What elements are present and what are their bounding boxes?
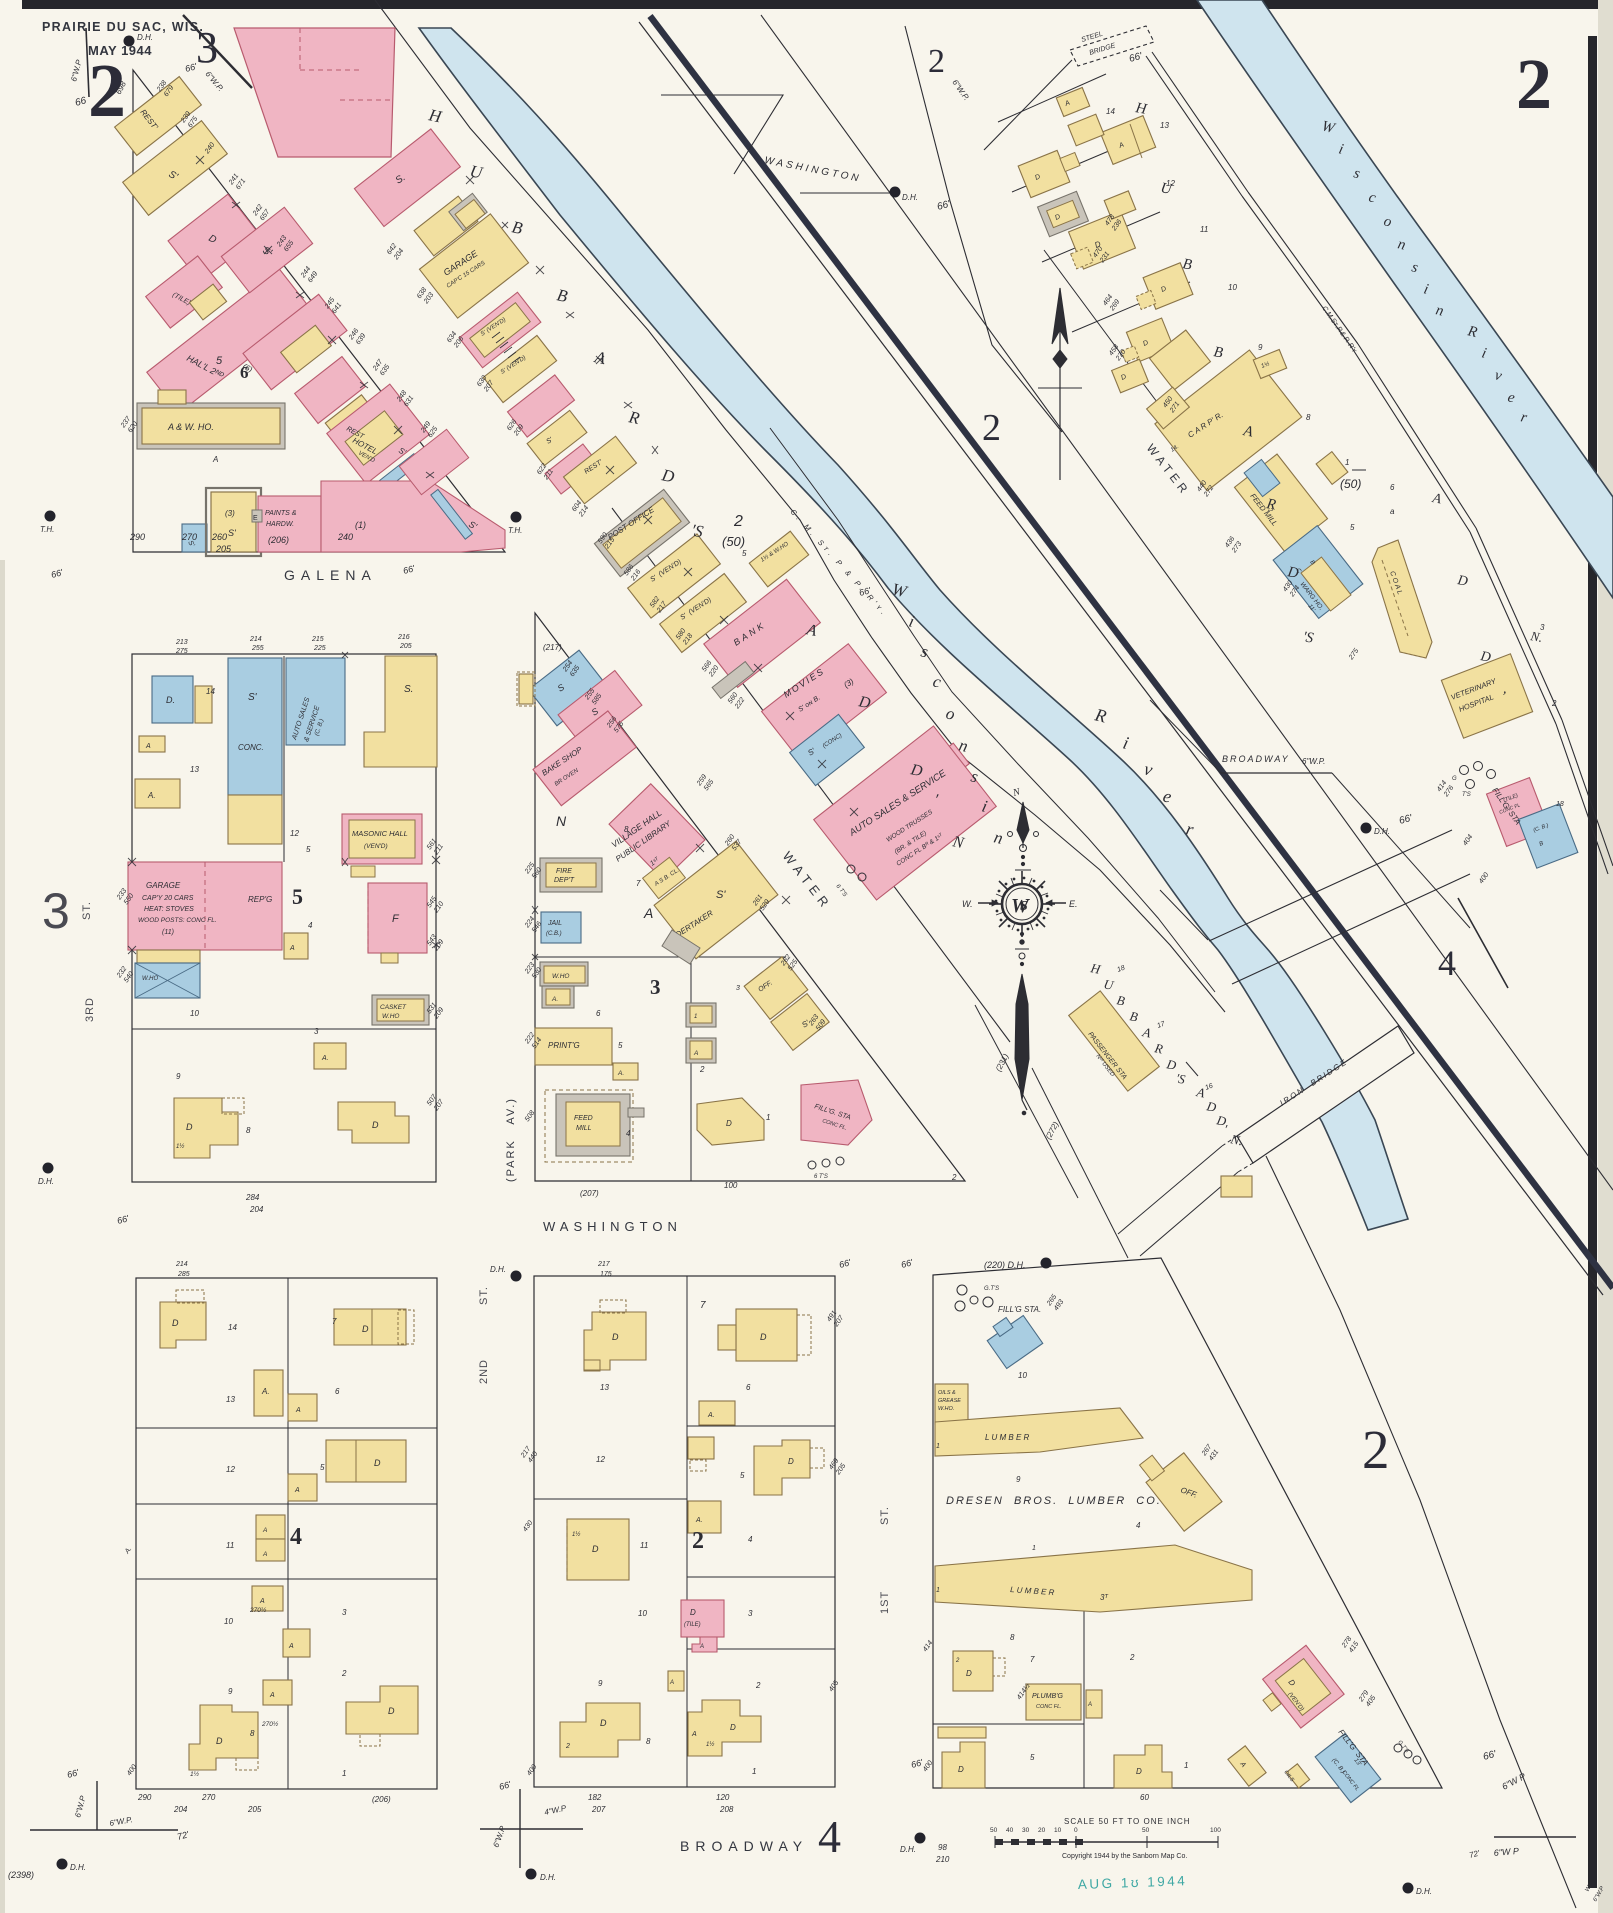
svg-text:BROADWAY: BROADWAY: [680, 1838, 808, 1854]
svg-text:1: 1: [936, 1587, 940, 1594]
svg-text:D.H.: D.H.: [38, 1177, 54, 1186]
svg-text:2: 2: [1129, 1653, 1135, 1662]
svg-text:S': S': [228, 528, 236, 538]
svg-text:1: 1: [1032, 1545, 1036, 1552]
svg-text:FIRE: FIRE: [556, 868, 572, 875]
svg-text:D: D: [216, 1736, 223, 1746]
svg-text:255: 255: [251, 645, 264, 652]
svg-text:CONC FL.: CONC FL.: [1036, 1704, 1062, 1710]
svg-text:A: A: [145, 743, 151, 750]
svg-text:D.H.: D.H.: [540, 1873, 556, 1882]
svg-text:5: 5: [292, 884, 303, 909]
svg-text:12: 12: [596, 1455, 605, 1464]
svg-text:D.H.: D.H.: [1374, 827, 1390, 836]
svg-text:(50): (50): [722, 534, 745, 549]
svg-text:A: A: [289, 945, 295, 952]
svg-text:8: 8: [646, 1737, 651, 1746]
svg-text:D: D: [592, 1544, 599, 1554]
svg-text:(217): (217): [543, 643, 562, 652]
svg-text:7: 7: [1030, 1655, 1035, 1664]
svg-text:290: 290: [129, 532, 145, 542]
svg-text:D.H.: D.H.: [902, 193, 918, 202]
svg-text:2: 2: [982, 407, 1001, 449]
svg-text:20: 20: [1038, 1827, 1046, 1834]
svg-text:2: 2: [951, 1173, 957, 1182]
svg-text:213: 213: [175, 639, 188, 646]
svg-text:A: A: [269, 1692, 275, 1699]
svg-text:G.T'S: G.T'S: [984, 1286, 999, 1292]
svg-text:214: 214: [249, 636, 262, 643]
svg-text:A: A: [669, 1680, 674, 1686]
svg-text:3: 3: [748, 1609, 753, 1618]
svg-text:PRAIRIE DU SAC, WIS.: PRAIRIE DU SAC, WIS.: [42, 20, 204, 34]
svg-text:1½: 1½: [572, 1531, 580, 1538]
svg-text:270½: 270½: [249, 1606, 267, 1614]
svg-text:1½: 1½: [706, 1741, 714, 1748]
svg-text:5: 5: [742, 549, 747, 558]
svg-text:ST.: ST.: [879, 1506, 891, 1525]
svg-text:4: 4: [626, 1129, 631, 1138]
svg-text:S': S': [716, 889, 726, 901]
svg-text:A.: A.: [551, 996, 558, 1003]
svg-text:6: 6: [240, 363, 249, 382]
svg-text:1: 1: [694, 1014, 697, 1020]
svg-text:284: 284: [245, 1193, 260, 1202]
svg-text:50: 50: [990, 1827, 998, 1834]
svg-text:2: 2: [699, 1065, 705, 1074]
svg-text:120: 120: [716, 1793, 730, 1802]
svg-text:REP'G: REP'G: [248, 895, 272, 904]
svg-text:13: 13: [226, 1395, 235, 1404]
svg-text:D: D: [966, 1669, 972, 1678]
svg-text:A: A: [1087, 1702, 1092, 1708]
svg-text:(11): (11): [162, 929, 174, 936]
svg-text:PAINTS &: PAINTS &: [265, 510, 297, 517]
svg-text:6: 6: [596, 1009, 601, 1018]
svg-text:4: 4: [818, 1811, 841, 1862]
svg-text:JAIL: JAIL: [547, 920, 562, 927]
svg-text:50: 50: [1142, 1827, 1150, 1834]
svg-text:270½: 270½: [261, 1720, 279, 1728]
svg-text:2: 2: [692, 1528, 704, 1554]
svg-text:A: A: [643, 905, 653, 921]
svg-text:8: 8: [250, 1729, 255, 1738]
svg-text:D: D: [730, 1723, 736, 1732]
svg-text:(206): (206): [268, 535, 289, 545]
svg-text:4: 4: [308, 921, 313, 930]
svg-text:9: 9: [1258, 343, 1263, 352]
svg-text:1: 1: [766, 1113, 770, 1122]
svg-text:WASHINGTON: WASHINGTON: [543, 1219, 682, 1234]
svg-text:WOOD POSTS: CONC FL.: WOOD POSTS: CONC FL.: [138, 917, 217, 924]
svg-text:E.: E.: [1069, 899, 1078, 909]
svg-text:285: 285: [177, 1271, 190, 1278]
svg-text:3: 3: [42, 883, 70, 939]
svg-text:HARDW.: HARDW.: [266, 521, 294, 528]
svg-text:(207): (207): [580, 1189, 599, 1198]
svg-text:N: N: [556, 813, 567, 829]
svg-text:(PARK AV.): (PARK AV.): [505, 1097, 517, 1182]
svg-text:4: 4: [748, 1535, 753, 1544]
svg-text:A: A: [294, 1487, 300, 1494]
svg-text:13: 13: [190, 765, 199, 774]
svg-text:1: 1: [752, 1767, 756, 1776]
svg-text:204: 204: [249, 1205, 264, 1214]
svg-text:FEED: FEED: [574, 1115, 593, 1122]
svg-text:3RD: 3RD: [84, 997, 96, 1022]
svg-text:(2398): (2398): [8, 1870, 34, 1880]
svg-text:7: 7: [636, 879, 641, 888]
svg-text:D: D: [1136, 1767, 1142, 1776]
svg-text:A: A: [288, 1643, 294, 1650]
svg-text:40: 40: [1006, 1827, 1014, 1834]
svg-text:D.H.: D.H.: [70, 1863, 86, 1872]
svg-text:1ST: 1ST: [879, 1591, 891, 1614]
svg-text:A.: A.: [695, 1517, 703, 1524]
svg-text:A.: A.: [321, 1055, 329, 1062]
svg-text:D: D: [388, 1706, 395, 1716]
svg-text:A: A: [262, 1551, 267, 1558]
svg-text:HEAT: STOVES: HEAT: STOVES: [144, 906, 194, 913]
svg-text:7: 7: [332, 1317, 337, 1326]
svg-text:(1): (1): [355, 520, 366, 530]
svg-text:5: 5: [306, 845, 311, 854]
svg-text:A: A: [691, 1731, 697, 1738]
svg-text:4: 4: [1438, 943, 1456, 983]
svg-text:18: 18: [1556, 801, 1564, 808]
svg-text:2: 2: [755, 1681, 761, 1690]
svg-text:D.H.: D.H.: [1416, 1887, 1432, 1896]
svg-text:14: 14: [1106, 107, 1115, 116]
svg-text:A.: A.: [261, 1387, 270, 1396]
svg-text:1½: 1½: [190, 1770, 200, 1778]
svg-text:2: 2: [955, 1658, 960, 1664]
svg-text:205: 205: [215, 544, 232, 554]
svg-text:210: 210: [935, 1855, 950, 1864]
svg-text:D.H.: D.H.: [900, 1845, 916, 1854]
svg-text:1: 1: [936, 1443, 940, 1450]
svg-text:MILL: MILL: [576, 1125, 592, 1132]
svg-text:9: 9: [228, 1687, 233, 1696]
svg-text:PLUMB'G: PLUMB'G: [1032, 1693, 1063, 1700]
svg-text:13: 13: [1160, 121, 1169, 130]
svg-text:6: 6: [746, 1383, 751, 1392]
svg-text:290: 290: [137, 1793, 152, 1802]
svg-text:7: 7: [700, 1300, 706, 1311]
svg-text:10: 10: [638, 1609, 647, 1618]
svg-text:270: 270: [201, 1793, 216, 1802]
svg-text:CAP'Y 20 CARS: CAP'Y 20 CARS: [142, 895, 194, 902]
svg-text:T.H.: T.H.: [508, 526, 522, 535]
svg-text:2: 2: [733, 513, 743, 530]
svg-text:11: 11: [226, 1541, 234, 1550]
svg-text:9: 9: [1016, 1475, 1021, 1484]
svg-text:60: 60: [1140, 1793, 1149, 1802]
svg-text:215: 215: [311, 636, 324, 643]
svg-text:2: 2: [1362, 1419, 1390, 1480]
svg-text:275: 275: [175, 648, 188, 655]
svg-text:a: a: [1390, 507, 1395, 516]
svg-text:2: 2: [565, 1743, 570, 1750]
svg-text:A: A: [262, 1527, 267, 1534]
svg-text:11: 11: [640, 1541, 648, 1550]
svg-text:270: 270: [181, 532, 197, 542]
svg-text:3: 3: [314, 1027, 319, 1036]
svg-text:3: 3: [650, 975, 661, 999]
svg-text:1: 1: [1345, 458, 1349, 467]
svg-text:1: 1: [342, 1769, 346, 1778]
svg-text:D: D: [374, 1458, 381, 1468]
svg-text:W.: W.: [962, 899, 973, 909]
svg-text:10: 10: [224, 1617, 233, 1626]
svg-text:260: 260: [211, 532, 227, 542]
svg-text:5: 5: [216, 355, 223, 367]
svg-text:5: 5: [740, 1471, 745, 1480]
svg-text:8: 8: [1010, 1633, 1015, 1642]
svg-text:GARAGE: GARAGE: [146, 881, 181, 890]
svg-text:D: D: [690, 1608, 696, 1617]
svg-text:2: 2: [1516, 44, 1552, 124]
svg-text:3ᵀ: 3ᵀ: [1100, 1593, 1108, 1602]
svg-text:A: A: [295, 1407, 301, 1414]
svg-text:OILS &: OILS &: [938, 1390, 956, 1396]
svg-text:(C.B.): (C.B.): [546, 931, 562, 937]
svg-text:GALENA: GALENA: [284, 567, 377, 583]
svg-text:4: 4: [290, 1524, 302, 1550]
svg-text:A.: A.: [147, 791, 156, 800]
svg-text:CONC.: CONC.: [238, 743, 264, 752]
svg-text:8: 8: [246, 1126, 251, 1135]
svg-text:W.HO: W.HO: [142, 976, 158, 982]
svg-text:0: 0: [1074, 1827, 1078, 1834]
svg-text:205: 205: [247, 1805, 262, 1814]
svg-text:100: 100: [1210, 1827, 1221, 1834]
svg-text:G: G: [1452, 776, 1457, 782]
svg-text:D: D: [600, 1718, 607, 1728]
svg-text:(50): (50): [1340, 477, 1361, 491]
svg-text:D: D: [172, 1318, 179, 1328]
svg-text:175: 175: [600, 1271, 612, 1278]
svg-text:E: E: [253, 515, 258, 522]
svg-text:DRESEN BROS. LUMBER CO.: DRESEN BROS. LUMBER CO.: [946, 1495, 1162, 1507]
svg-text:240: 240: [337, 532, 353, 542]
svg-text:14: 14: [206, 687, 215, 696]
svg-text:S.: S.: [404, 684, 413, 695]
svg-text:217: 217: [597, 1261, 611, 1268]
svg-text:5: 5: [320, 1463, 325, 1472]
svg-text:GREASE: GREASE: [938, 1398, 961, 1404]
svg-text:5: 5: [1030, 1753, 1035, 1762]
svg-text:(3): (3): [225, 509, 235, 518]
svg-text:PRINT'G: PRINT'G: [548, 1041, 580, 1050]
svg-text:D: D: [958, 1765, 964, 1774]
svg-text:D: D: [362, 1324, 369, 1334]
svg-text:10: 10: [1054, 1827, 1062, 1834]
svg-text:MASONIC HALL: MASONIC HALL: [352, 829, 408, 838]
svg-text:Copyright 1944 by the Sanborn: Copyright 1944 by the Sanborn Map Co.: [1062, 1853, 1187, 1860]
svg-text:12: 12: [290, 829, 299, 838]
svg-text:10: 10: [190, 1009, 199, 1018]
svg-text:11: 11: [1200, 225, 1208, 234]
svg-text:4: 4: [1136, 1521, 1141, 1530]
svg-text:216: 216: [397, 634, 410, 641]
svg-text:A: A: [699, 1644, 704, 1650]
svg-text:10: 10: [1018, 1371, 1027, 1380]
svg-text:L U M B E R: L U M B E R: [985, 1433, 1030, 1442]
svg-text:30: 30: [1022, 1827, 1030, 1834]
svg-text:9: 9: [176, 1072, 181, 1081]
svg-text:D: D: [726, 1119, 732, 1128]
svg-text:6 T'S: 6 T'S: [814, 1174, 828, 1180]
svg-text:2: 2: [1551, 699, 1557, 708]
svg-text:S': S': [248, 692, 258, 703]
svg-text:D.: D.: [166, 695, 175, 705]
svg-text:A.: A.: [707, 1412, 715, 1419]
svg-text:D.H.: D.H.: [137, 33, 153, 42]
svg-text:FILL'G STA.: FILL'G STA.: [998, 1305, 1041, 1314]
svg-text:1: 1: [1184, 1761, 1188, 1770]
svg-text:D: D: [788, 1457, 794, 1466]
svg-text:W.HO.: W.HO.: [938, 1406, 954, 1412]
svg-text:D: D: [612, 1332, 619, 1342]
svg-text:182: 182: [588, 1793, 602, 1802]
svg-text:D: D: [760, 1332, 767, 1342]
svg-text:9: 9: [598, 1679, 603, 1688]
svg-text:3: 3: [1540, 623, 1545, 632]
svg-text:1½: 1½: [176, 1143, 184, 1150]
svg-text:5: 5: [618, 1041, 623, 1050]
svg-text:ST.: ST.: [478, 1286, 490, 1305]
svg-text:205: 205: [399, 643, 412, 650]
svg-text:5: 5: [1350, 523, 1355, 532]
svg-text:207: 207: [591, 1805, 606, 1814]
svg-text:6: 6: [1390, 483, 1395, 492]
svg-text:BROADWAY: BROADWAY: [1222, 754, 1290, 764]
svg-text:A.: A.: [617, 1070, 624, 1077]
svg-text:8: 8: [624, 825, 629, 834]
svg-text:W.HO: W.HO: [552, 973, 569, 980]
svg-text:D: D: [372, 1120, 379, 1130]
svg-text:14: 14: [228, 1323, 237, 1332]
svg-text:A: A: [212, 455, 218, 464]
svg-text:12: 12: [226, 1465, 235, 1474]
svg-text:225: 225: [313, 645, 326, 652]
svg-text:98: 98: [938, 1843, 947, 1852]
svg-text:6"W.P.: 6"W.P.: [1302, 757, 1325, 766]
svg-text:8: 8: [1306, 413, 1311, 422]
svg-text:(220) D.H.: (220) D.H.: [984, 1260, 1026, 1270]
svg-text:W.HO: W.HO: [382, 1013, 399, 1020]
svg-text:204: 204: [173, 1805, 188, 1814]
svg-text:2: 2: [928, 43, 945, 80]
svg-text:3: 3: [342, 1608, 347, 1617]
svg-text:T.H.: T.H.: [40, 525, 54, 534]
svg-text:T'S: T'S: [1462, 792, 1471, 798]
svg-text:D.H.: D.H.: [490, 1265, 506, 1274]
svg-text:3: 3: [736, 985, 740, 992]
svg-text:(206): (206): [372, 1795, 391, 1804]
svg-text:A: A: [693, 1050, 698, 1057]
svg-text:208: 208: [719, 1805, 734, 1814]
svg-text:13: 13: [600, 1383, 609, 1392]
svg-text:214: 214: [175, 1261, 188, 1268]
svg-text:(VEN'D): (VEN'D): [364, 843, 388, 850]
svg-text:A: A: [259, 1598, 265, 1605]
svg-text:10: 10: [1228, 283, 1237, 292]
svg-text:S: S: [1020, 899, 1028, 914]
svg-text:2: 2: [341, 1669, 347, 1678]
svg-text:2ND: 2ND: [478, 1359, 490, 1384]
svg-text:CASKET: CASKET: [380, 1004, 407, 1011]
svg-text:6: 6: [335, 1387, 340, 1396]
svg-text:DEP'T: DEP'T: [554, 877, 575, 884]
svg-text:A & W. HO.: A & W. HO.: [167, 422, 214, 432]
svg-text:(TILE): (TILE): [684, 1622, 701, 1628]
svg-text:100: 100: [724, 1181, 738, 1190]
svg-text:D: D: [186, 1122, 193, 1132]
svg-text:SCALE 50 FT TO ONE INCH: SCALE 50 FT TO ONE INCH: [1064, 1817, 1191, 1826]
svg-text:ST.: ST.: [81, 901, 93, 920]
